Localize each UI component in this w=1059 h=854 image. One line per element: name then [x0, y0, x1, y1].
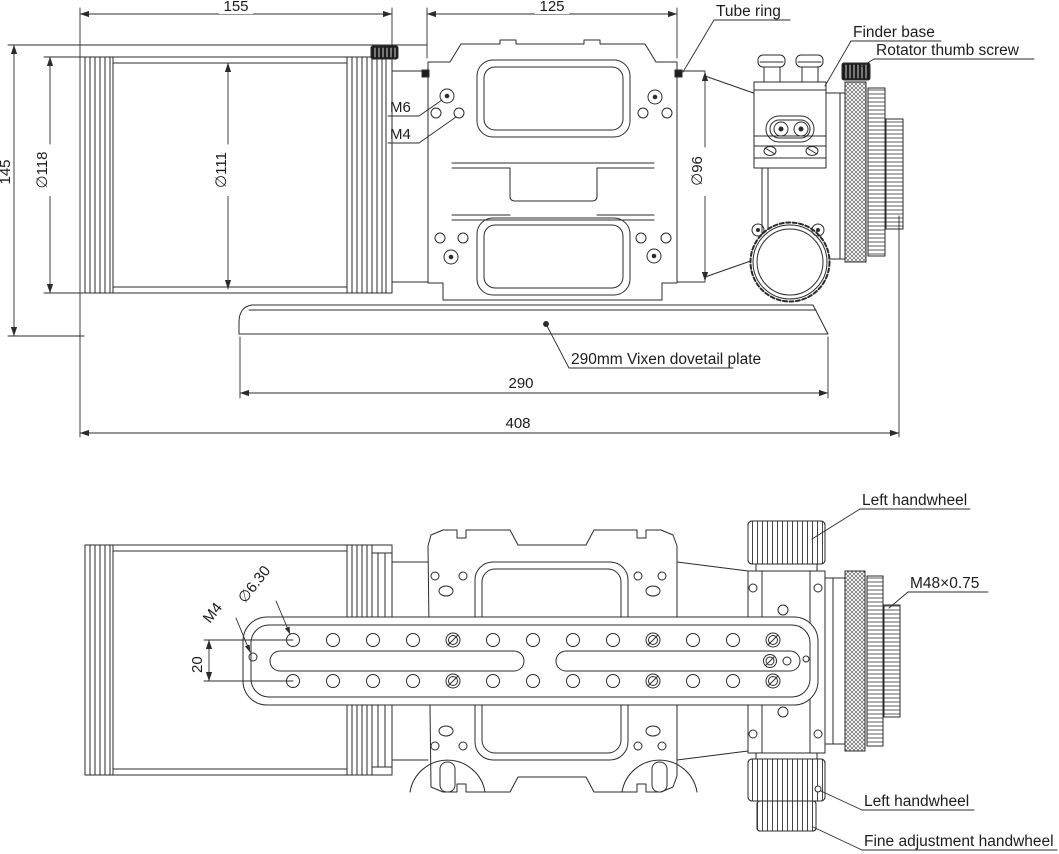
dia-118: ∅118 — [34, 152, 51, 189]
label-tube-ring: Tube ring — [716, 3, 781, 20]
focuser-assembly — [677, 55, 903, 302]
label-rotator-thumb-screw: Rotator thumb screw — [876, 42, 1020, 59]
m48-thread-ring-bottom — [884, 605, 900, 717]
drawtube-ribbed-ring — [868, 88, 885, 256]
drawtube-ribbed-ring-bottom — [867, 576, 883, 746]
label-left-handwheel-bottom: Left handwheel — [864, 793, 969, 810]
label-m4-bottom: M4 — [200, 600, 226, 627]
dim-155: 155 — [223, 0, 248, 15]
dia-6-30: ∅6.30 — [235, 563, 274, 607]
label-finder-base: Finder base — [853, 24, 935, 41]
dia-96: ∅96 — [689, 156, 706, 186]
m48-thread-ring — [886, 119, 903, 229]
focus-handwheel-side — [751, 223, 830, 302]
dim-145: 145 — [0, 159, 14, 184]
dim-125: 125 — [539, 0, 564, 15]
top-view-dimensions — [8, 8, 899, 437]
finder-base — [754, 82, 826, 168]
telescope-drawing-canvas: 155 125 145 ∅118 ∅111 ∅96 M6 M4 290 408 … — [0, 0, 1059, 854]
label-left-handwheel-top: Left handwheel — [862, 492, 967, 509]
label-fine-adjustment-handwheel: Fine adjustment handwheel — [864, 833, 1054, 850]
rotator-knurled-ring — [845, 82, 866, 262]
dim-20: 20 — [189, 656, 206, 673]
label-dovetail-plate: 290mm Vixen dovetail plate — [571, 351, 761, 368]
label-m48-thread: M48×0.75 — [910, 575, 979, 592]
fine-adjustment-handwheel — [757, 801, 816, 831]
clamp-boss-left — [410, 760, 485, 792]
dovetail-plate-side — [239, 305, 828, 334]
dim-290: 290 — [508, 375, 533, 392]
finder-thumb-screws — [758, 55, 823, 82]
rotator-thumb-screw — [842, 63, 870, 80]
dovetail-plate-bottom — [243, 617, 818, 705]
tube-ring-assembly — [422, 40, 682, 300]
left-handwheel-top — [748, 521, 825, 571]
dew-shield — [85, 46, 428, 293]
top-view-leaders — [388, 20, 1034, 368]
rotator-knurled-ring-bottom — [845, 571, 865, 751]
top-view — [8, 8, 1034, 437]
clamp-boss-right — [622, 760, 697, 792]
technical-drawing-page: 155 125 145 ∅118 ∅111 ∅96 M6 M4 290 408 … — [0, 0, 1059, 854]
left-handwheel-bottom — [748, 753, 825, 801]
ring-clamp-mark-left — [422, 70, 429, 77]
dim-408: 408 — [505, 415, 530, 432]
label-m6: M6 — [390, 99, 411, 116]
hood-thumb-screw-icon — [371, 46, 398, 59]
label-m4: M4 — [390, 126, 411, 143]
dia-111: ∅111 — [213, 152, 230, 188]
